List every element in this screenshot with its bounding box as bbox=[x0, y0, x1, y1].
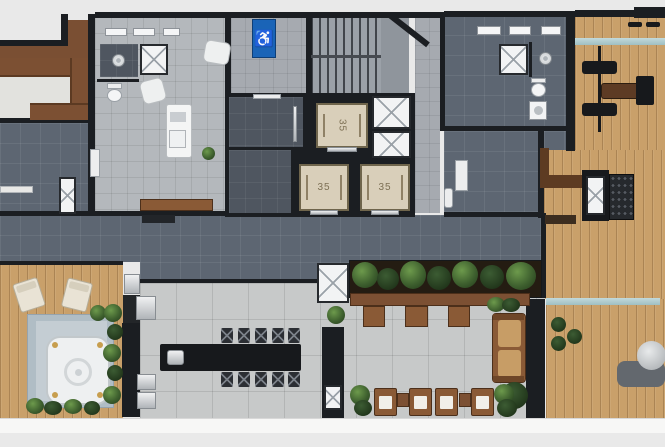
plant bbox=[104, 304, 122, 322]
garden-stool bbox=[551, 336, 566, 351]
wall bbox=[140, 279, 322, 283]
wheelchair-icon: ♿ bbox=[254, 29, 274, 49]
wall bbox=[444, 126, 568, 131]
wall bbox=[0, 261, 123, 265]
armchair bbox=[409, 388, 432, 416]
hot-tub-drain bbox=[75, 369, 82, 376]
plant bbox=[103, 344, 121, 362]
wall-column bbox=[526, 299, 545, 418]
service-room-floor bbox=[229, 97, 303, 147]
door-leaf bbox=[59, 177, 76, 214]
dining-chair bbox=[255, 372, 267, 387]
plant bbox=[377, 268, 399, 290]
door-leaf bbox=[455, 160, 468, 191]
weight-rack bbox=[582, 61, 617, 74]
wall-vent bbox=[163, 28, 180, 36]
plant bbox=[480, 265, 504, 289]
wall-vent bbox=[477, 26, 501, 35]
equipment-cabinet bbox=[136, 296, 156, 320]
service-shaft bbox=[499, 44, 528, 75]
elevator-door bbox=[371, 210, 399, 215]
wood-counter bbox=[68, 20, 88, 46]
dining-chair bbox=[238, 328, 250, 343]
garden-stool bbox=[551, 317, 566, 332]
wall bbox=[575, 10, 635, 17]
garden-stool bbox=[567, 329, 582, 344]
plant bbox=[427, 266, 451, 290]
sofa-cushion bbox=[498, 350, 521, 377]
service-shaft bbox=[140, 44, 168, 75]
elevator-cab-label: 35 bbox=[301, 166, 347, 209]
dining-chair bbox=[221, 372, 233, 387]
plant bbox=[400, 261, 426, 289]
plant bbox=[502, 298, 520, 312]
hot-tub-jet bbox=[97, 342, 103, 348]
elevator-cab: 35 bbox=[360, 164, 410, 211]
equipment-cabinet bbox=[137, 392, 156, 409]
plant bbox=[44, 401, 62, 415]
plant bbox=[327, 306, 345, 324]
wood-shelf bbox=[0, 46, 88, 58]
wall bbox=[88, 14, 95, 215]
wall-vent bbox=[541, 26, 561, 35]
plant bbox=[26, 398, 44, 414]
accessibility-sign: ♿ bbox=[252, 19, 276, 58]
dumbbell bbox=[628, 22, 642, 27]
dining-chair bbox=[221, 328, 233, 343]
service-shaft bbox=[317, 263, 349, 303]
hot-tub-jet bbox=[52, 342, 58, 348]
plant bbox=[452, 261, 478, 288]
sofa-section bbox=[30, 103, 88, 120]
elevator-cab-label: 35 bbox=[322, 102, 363, 150]
chair bbox=[202, 39, 232, 66]
sofa-cushion bbox=[498, 320, 521, 347]
washing-machine bbox=[529, 101, 547, 120]
elevator-door bbox=[327, 147, 357, 152]
plant bbox=[202, 147, 215, 160]
dining-chair bbox=[288, 372, 300, 387]
desk-item bbox=[170, 112, 186, 122]
wall bbox=[440, 14, 445, 131]
armchair bbox=[374, 388, 397, 416]
wall bbox=[444, 212, 541, 217]
door-leaf bbox=[90, 149, 100, 177]
sink bbox=[167, 350, 184, 365]
door-leaf bbox=[293, 106, 297, 142]
gym-deck-ledge bbox=[575, 16, 665, 38]
dining-chair bbox=[238, 372, 250, 387]
bench bbox=[142, 215, 175, 223]
elevator-cab: 35 bbox=[316, 103, 368, 148]
wall bbox=[444, 11, 575, 17]
weight-rack bbox=[582, 103, 617, 116]
toilet bbox=[531, 83, 546, 97]
grill-burners bbox=[609, 174, 634, 220]
workout-bench bbox=[601, 83, 639, 99]
table bbox=[448, 306, 470, 327]
plant bbox=[64, 399, 82, 414]
side-table bbox=[397, 393, 409, 407]
service-shaft bbox=[372, 96, 411, 129]
plant bbox=[497, 399, 517, 417]
bench bbox=[545, 215, 576, 224]
table bbox=[405, 306, 428, 327]
wall-partition bbox=[97, 79, 139, 82]
dining-chair bbox=[272, 372, 284, 387]
bench bbox=[140, 199, 213, 211]
plant bbox=[354, 400, 372, 416]
wall bbox=[634, 7, 665, 18]
elevator-cab: 35 bbox=[299, 164, 349, 211]
shower-head bbox=[112, 54, 125, 67]
dining-chair bbox=[272, 328, 284, 343]
grill-cover bbox=[586, 176, 605, 215]
wall-vent bbox=[105, 28, 127, 36]
shower-head bbox=[539, 52, 552, 65]
glass-railing bbox=[575, 38, 665, 45]
equipment-cabinet bbox=[137, 374, 156, 390]
wall bbox=[61, 14, 68, 46]
wall-partition bbox=[529, 42, 532, 77]
plant bbox=[352, 262, 378, 288]
corridor-floor bbox=[0, 215, 545, 262]
hot-tub-jet bbox=[52, 392, 58, 398]
wall-vent bbox=[509, 26, 531, 35]
elevator-door bbox=[310, 210, 338, 215]
bench-press-rack bbox=[636, 76, 654, 105]
plant bbox=[84, 401, 100, 415]
dumbbell bbox=[646, 22, 660, 27]
service-room-floor bbox=[229, 150, 291, 213]
plant bbox=[506, 262, 536, 290]
sofa-armrest bbox=[493, 376, 524, 382]
stair-landing-divider bbox=[311, 55, 381, 58]
service-shaft bbox=[372, 131, 411, 158]
door bbox=[253, 94, 281, 99]
floor-plan-canvas: 35 35 35 ♿ bbox=[0, 0, 665, 447]
wall-vent bbox=[133, 28, 155, 36]
plant bbox=[103, 386, 121, 404]
elevator-cab-label: 35 bbox=[362, 166, 408, 209]
desk-item bbox=[169, 130, 186, 148]
hallway-floor bbox=[415, 17, 440, 213]
equipment-cabinet bbox=[124, 274, 140, 294]
table bbox=[363, 306, 385, 327]
side-table bbox=[459, 393, 471, 407]
sink bbox=[444, 188, 453, 208]
service-shaft bbox=[324, 385, 342, 410]
glass-railing bbox=[546, 298, 660, 305]
wall bbox=[0, 211, 230, 216]
dining-chair bbox=[255, 328, 267, 343]
building-edge bbox=[0, 418, 665, 433]
bean-bag bbox=[637, 341, 665, 370]
armchair bbox=[471, 388, 494, 416]
dining-chair bbox=[288, 328, 300, 343]
toilet bbox=[107, 89, 122, 102]
plant bbox=[107, 324, 123, 340]
bench bbox=[0, 186, 33, 193]
plant bbox=[107, 365, 123, 381]
armchair bbox=[435, 388, 458, 416]
